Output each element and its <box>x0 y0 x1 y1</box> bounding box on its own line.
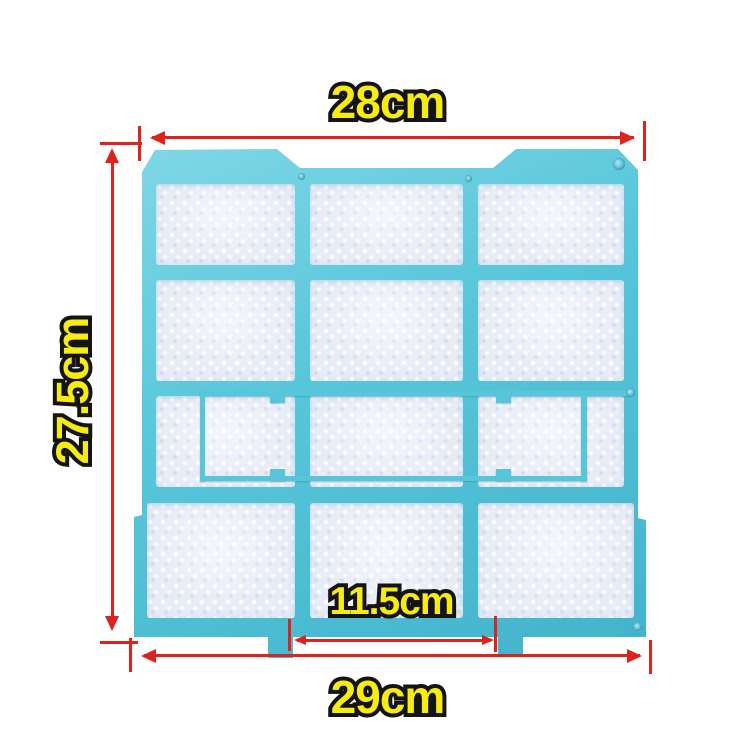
dimension-label-inner: 11.5cm 11.5cm <box>289 577 494 627</box>
dimension-label-inner-text: 11.5cm <box>289 577 494 627</box>
product-image: 28cm 28cm 27.5cm 27.5cm 11.5cm 11.5cm 29… <box>0 0 750 750</box>
screw-hole-bottom-right <box>633 622 642 631</box>
mesh-panel-r2c2 <box>310 280 463 381</box>
dimension-tick-bottom-right <box>649 640 652 674</box>
arrowhead-bottom-right <box>627 649 642 663</box>
pin-hole-divider-1 <box>298 173 305 180</box>
inner-frame-clip <box>270 391 285 403</box>
dimension-label-top: 28cm 28cm <box>285 74 490 130</box>
inner-frame-clip <box>496 469 511 481</box>
inner-frame-clip <box>496 391 511 403</box>
mesh-panel-r2c3 <box>478 280 624 381</box>
mesh-panel-r1c3 <box>478 184 624 265</box>
dimension-label-left-text: 27.5cm <box>45 276 101 506</box>
inner-frame-clip <box>270 469 285 481</box>
mesh-panel-r3c2 <box>310 396 463 487</box>
mesh-panel-r4c1 <box>147 503 295 618</box>
mesh-panel-r2c1 <box>156 280 295 381</box>
dimension-tick-left-bottom <box>100 641 138 644</box>
mesh-panel-r4c3 <box>478 503 634 618</box>
inner-frame-bottom-rail <box>200 476 587 481</box>
dimension-line-bottom <box>144 654 640 657</box>
dimension-tick-left-top <box>100 142 142 145</box>
mesh-panel-r1c1 <box>156 184 295 265</box>
pin-hole-divider-2 <box>465 175 472 182</box>
arrowhead-left-top <box>105 148 119 163</box>
dimension-line-left <box>111 154 114 626</box>
dimension-label-left: 27.5cm 27.5cm <box>45 276 101 506</box>
dimension-label-top-text: 28cm <box>285 74 490 130</box>
inner-frame-left-rail <box>200 391 205 481</box>
pin-hole-inner-frame <box>626 388 635 397</box>
inner-frame-right-rail <box>581 391 587 481</box>
dimension-tick-inner-right <box>494 616 497 652</box>
dimension-line-inner <box>297 639 491 642</box>
arrowhead-inner-left <box>294 635 306 645</box>
dimension-tick-top-right <box>643 121 646 161</box>
arrowhead-bottom-left <box>141 649 156 663</box>
dimension-tick-bottom-left <box>129 638 132 672</box>
inner-frame-top-rail <box>200 391 633 396</box>
arrowhead-top-left <box>150 131 165 145</box>
arrowhead-top-right <box>620 131 635 145</box>
dimension-label-bottom: 29cm 29cm <box>285 669 490 725</box>
dimension-label-bottom-text: 29cm <box>285 669 490 725</box>
dimension-line-top <box>152 136 634 139</box>
arrowhead-left-bottom <box>105 616 119 631</box>
mesh-panel-r1c2 <box>310 184 463 265</box>
arrowhead-inner-right <box>482 635 494 645</box>
screw-hole-top-right <box>613 158 625 170</box>
